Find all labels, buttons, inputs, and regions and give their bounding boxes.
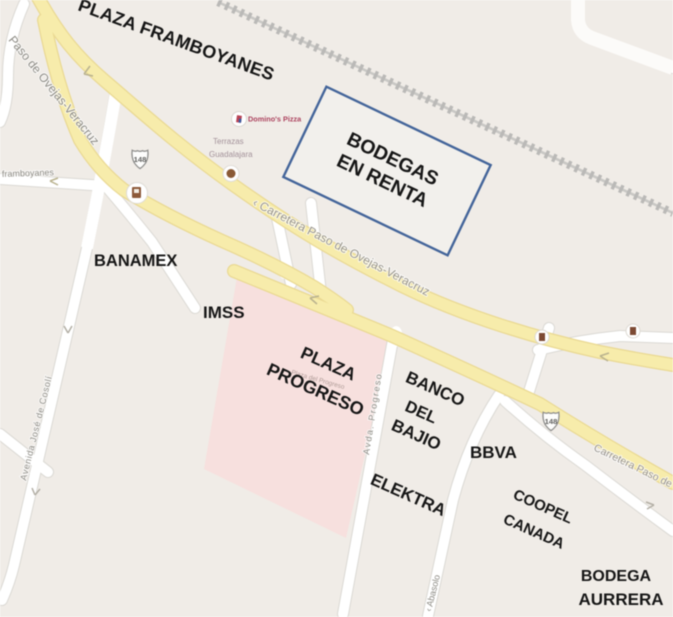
svg-text:Guadalajara: Guadalajara (209, 150, 253, 159)
svg-text:BBVA: BBVA (470, 443, 517, 462)
svg-text:148: 148 (134, 155, 147, 164)
svg-text:Terrazas: Terrazas (213, 137, 244, 146)
svg-text:AURRERA: AURRERA (579, 590, 664, 609)
svg-text:Domino's Pizza: Domino's Pizza (248, 115, 302, 124)
svg-text:framboyanes: framboyanes (2, 167, 55, 179)
svg-text:IMSS: IMSS (203, 303, 245, 322)
svg-text:BODEGA: BODEGA (581, 568, 652, 585)
svg-text:BANAMEX: BANAMEX (94, 252, 177, 270)
svg-text:148: 148 (545, 417, 558, 426)
